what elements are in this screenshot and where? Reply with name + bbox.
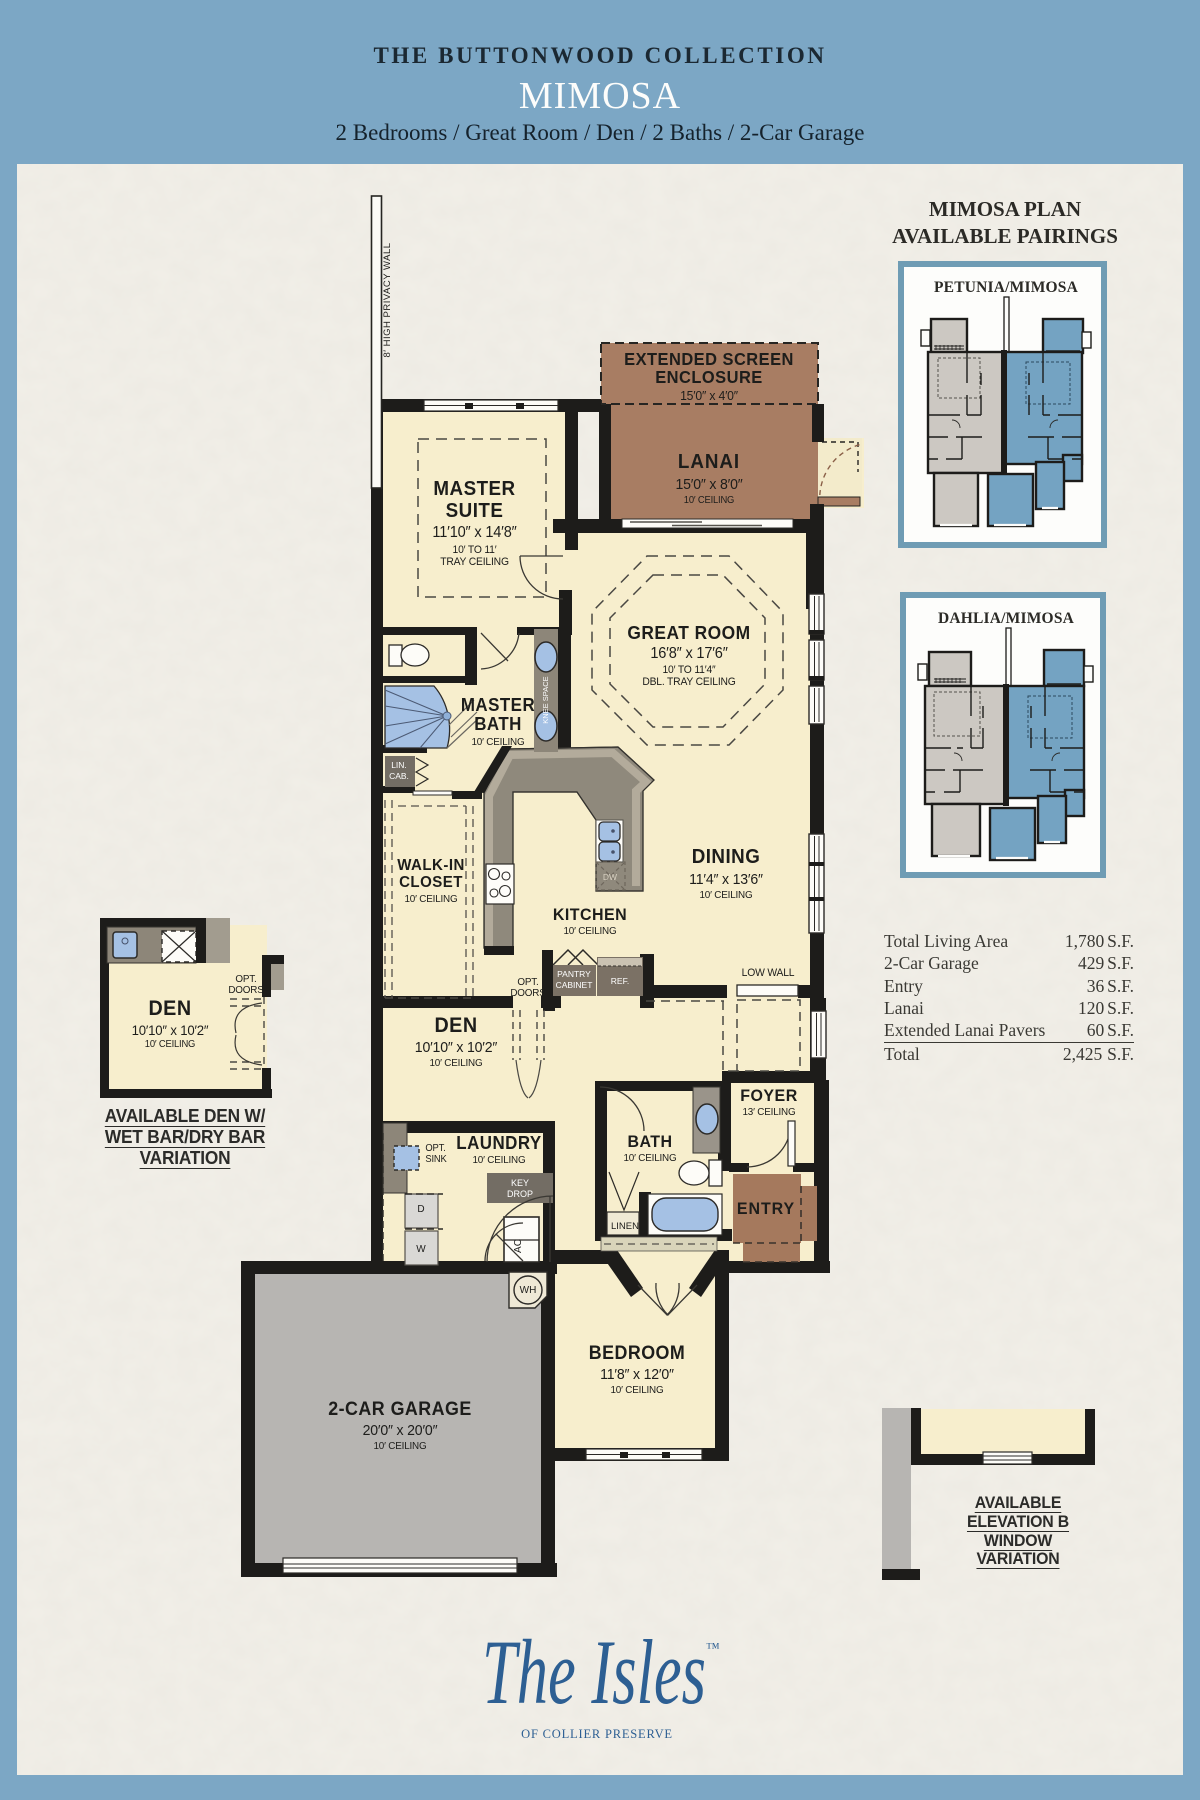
svg-text:OF COLLIER PRESERVE: OF COLLIER PRESERVE (521, 1727, 673, 1741)
svg-text:LINEN: LINEN (611, 1221, 639, 1232)
svg-text:AC: AC (513, 1239, 524, 1253)
svg-text:REF.: REF. (611, 976, 629, 986)
svg-text:8′ HIGH PRIVACY WALL: 8′ HIGH PRIVACY WALL (382, 242, 393, 357)
svg-text:KEY: KEY (511, 1178, 529, 1188)
svg-text:™: ™ (706, 1641, 720, 1656)
svg-text:WH: WH (520, 1285, 537, 1296)
svg-text:DW: DW (603, 872, 617, 882)
svg-text:CAB.: CAB. (389, 771, 409, 781)
svg-text:D: D (417, 1204, 424, 1215)
svg-text:DROP: DROP (507, 1189, 533, 1199)
svg-text:W: W (416, 1244, 426, 1255)
svg-text:The Isles: The Isles (482, 1621, 706, 1723)
svg-text:LIN.: LIN. (391, 760, 407, 770)
